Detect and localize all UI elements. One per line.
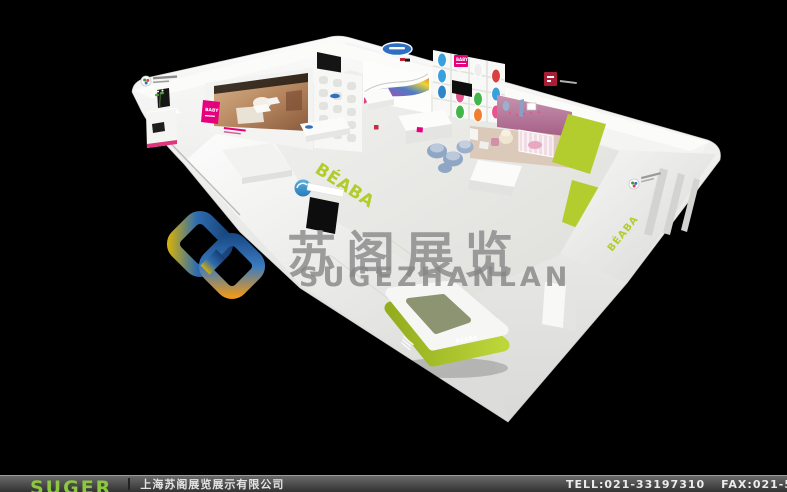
footer-divider xyxy=(128,478,130,490)
red-square-logo xyxy=(544,72,577,86)
footer-contact: TELL:021-33197310 FAX:021-5 xyxy=(566,478,787,491)
wall-decal-elephant xyxy=(503,101,510,111)
blue-tag xyxy=(305,125,313,129)
baby-logo-left: BABY xyxy=(201,100,220,124)
watermark-subtitle: SUGEZHANLAN xyxy=(299,262,571,293)
footer-company-name: 上海苏阁展览展示有限公司 xyxy=(140,476,284,492)
baby-logo-left-text: BABY xyxy=(205,107,219,114)
mini-logo-red xyxy=(400,58,405,61)
kids-table xyxy=(470,128,478,141)
watermark-chain-logo xyxy=(158,203,276,311)
wall-frame xyxy=(527,103,536,110)
footer-brand-logo: SUGER xyxy=(30,479,112,492)
render-canvas: BABY xyxy=(0,0,787,492)
sign-text-bar xyxy=(389,47,405,49)
armchair-back xyxy=(501,130,511,137)
footer-fax: FAX:021-5 xyxy=(721,478,787,491)
red-tag xyxy=(374,125,379,130)
round-company-logo xyxy=(629,179,639,189)
kids-stool xyxy=(479,141,489,150)
pink-tag xyxy=(417,127,423,133)
footer-tel: TELL:021-33197310 xyxy=(566,478,705,491)
baby-logo-shelf: BABY xyxy=(454,55,468,67)
logo-caption-bar xyxy=(560,80,577,84)
kids-chair xyxy=(491,138,499,146)
baby-logo-shelf-text: BABY xyxy=(456,57,468,62)
mural-furniture xyxy=(286,90,302,111)
mini-logo-black xyxy=(405,59,410,62)
dark-window xyxy=(157,88,170,108)
blue-tag xyxy=(330,94,340,98)
footer-bar: SUGER 上海苏阁展览展示有限公司 TELL:021-33197310 FAX… xyxy=(0,475,787,492)
